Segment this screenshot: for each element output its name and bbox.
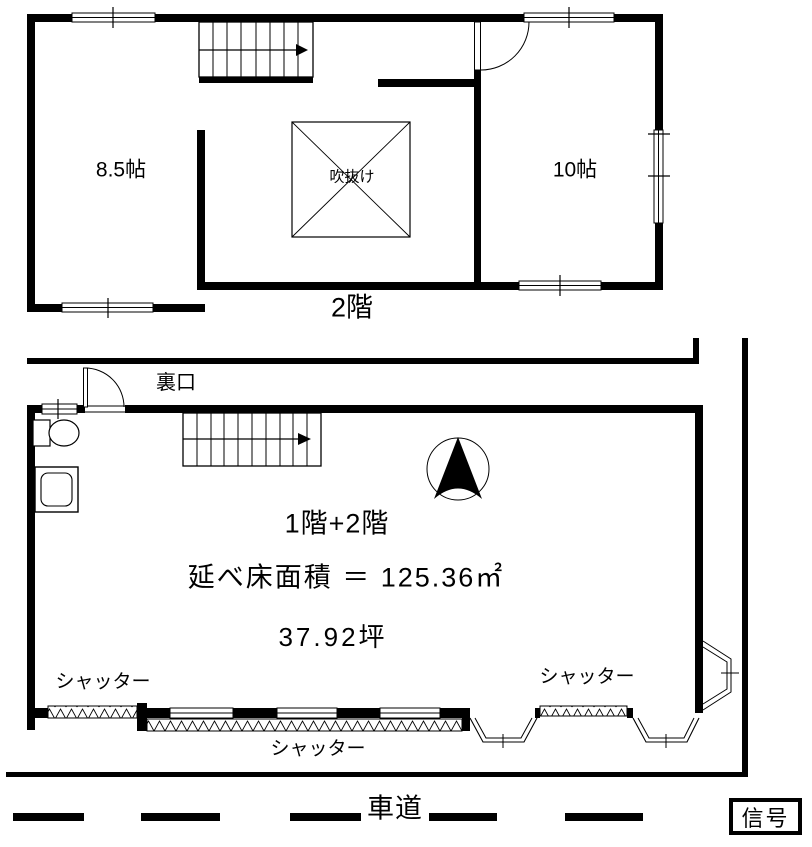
window-2f-bottom-left	[62, 298, 153, 318]
shutter-hatch-left	[48, 706, 137, 718]
stairs-2f-icon	[199, 22, 313, 77]
road-label: 車道	[367, 796, 423, 823]
floor-2-label: 2階	[331, 295, 373, 322]
total-floor-area-label: 延べ床面積 ＝ 125.36㎡	[188, 565, 505, 592]
back-door-label: 裏口	[156, 373, 196, 393]
shutter-right-label: シャッター	[539, 668, 634, 687]
door-10jo	[475, 22, 530, 70]
road-edge-line	[6, 772, 748, 777]
window-2f-top-left	[72, 7, 155, 28]
room-10-jo-label: 10帖	[553, 160, 597, 181]
toilet-icon	[33, 420, 79, 446]
floor-plan-canvas: 8.5帖 10帖 吹抜け 2階 裏口 1階+2階 延べ床面積 ＝ 125.36㎡…	[0, 0, 812, 847]
signal-badge: 信号	[729, 798, 802, 835]
bay-window-right	[703, 641, 739, 710]
floors-label: 1階+2階	[285, 511, 390, 538]
stairs-1f-icon	[183, 413, 321, 466]
north-arrow-icon	[427, 437, 489, 500]
bay-window-1	[470, 718, 537, 748]
shutter-hatch-bottom	[147, 719, 462, 731]
tsubo-area-label: 37.92坪	[278, 624, 387, 650]
shutter-left-label: シャッター	[55, 673, 150, 692]
shutter-bottom-label: シャッター	[270, 740, 365, 759]
window-1f-front	[170, 708, 440, 718]
bay-window-2	[633, 718, 699, 748]
signal-label: 信号	[741, 801, 789, 833]
window-2f-bottom-right	[519, 275, 601, 296]
shutter-hatch-right	[540, 706, 627, 716]
window-1f-top-left	[42, 399, 77, 419]
road-center-dashes	[13, 813, 643, 821]
back-door	[84, 368, 126, 413]
window-2f-right-wall	[648, 130, 670, 223]
window-2f-top-right	[524, 7, 614, 28]
room-8-5-jo-label: 8.5帖	[96, 160, 146, 181]
floor-plan-drawing	[0, 0, 812, 847]
void-label: 吹抜け	[329, 170, 374, 185]
sink-icon	[35, 467, 78, 512]
